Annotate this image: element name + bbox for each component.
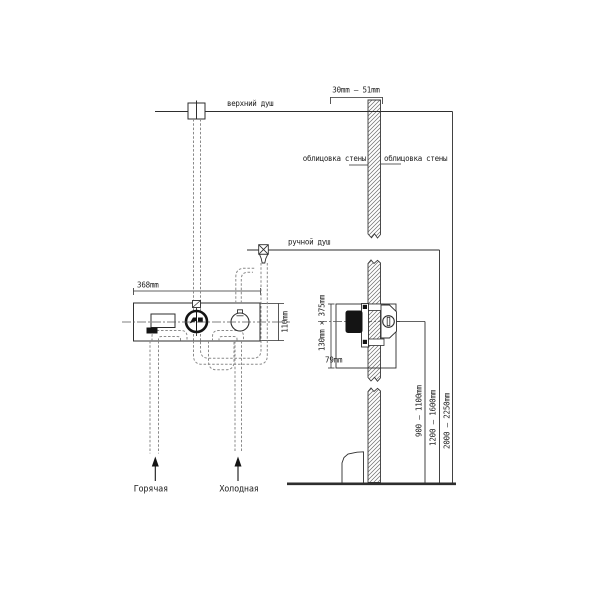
installation-diagram: верхний душ 30mm — 51mm облицовка стены …: [0, 0, 600, 600]
hand-shower-branch-pipe: [236, 268, 256, 303]
wall-cladding-label-right: облицовка стены: [384, 154, 448, 163]
shower-installation-drawing: верхний душ 30mm — 51mm облицовка стены …: [0, 0, 600, 600]
hand-shower-label: ручной душ: [288, 238, 331, 247]
overhead-shower-level: [155, 101, 453, 120]
plate-width-value: 368mm: [137, 281, 159, 290]
hot-supply-label: Горячая: [134, 485, 169, 495]
overhead-shower-label: верхний душ: [227, 99, 274, 108]
overhead-height-value: 2000 — 2250mm: [443, 392, 452, 449]
cold-supply-label: Холодная: [219, 485, 258, 495]
recess-depth-value: 79mm: [325, 356, 343, 365]
under-plate-loop: [209, 341, 235, 370]
cladding-thickness-value: 30mm — 51mm: [332, 86, 380, 95]
mounting-bracket-bottom: [369, 339, 385, 346]
wall-cladding-label-left: облицовка стены: [303, 154, 367, 163]
wall-hatch-bottom: [368, 388, 381, 483]
wall-hatch-top: [368, 100, 381, 238]
mixer-height-value: 900 — 1100mm: [415, 385, 424, 437]
recess-size-value: 130mm × 375mm: [318, 294, 327, 351]
cold-supply-arrow: [235, 457, 242, 482]
wall-section: [368, 100, 381, 483]
hot-supply-arrow: [152, 457, 159, 482]
hand-shower-height-value: 1200 — 1600mm: [429, 389, 438, 446]
bathtub-outline: [342, 452, 364, 483]
hand-shower-holder: [259, 245, 269, 263]
concealed-pipes: [150, 119, 267, 454]
wall-hatch-middle: [368, 260, 381, 381]
mixer-handle-side: [346, 311, 363, 334]
